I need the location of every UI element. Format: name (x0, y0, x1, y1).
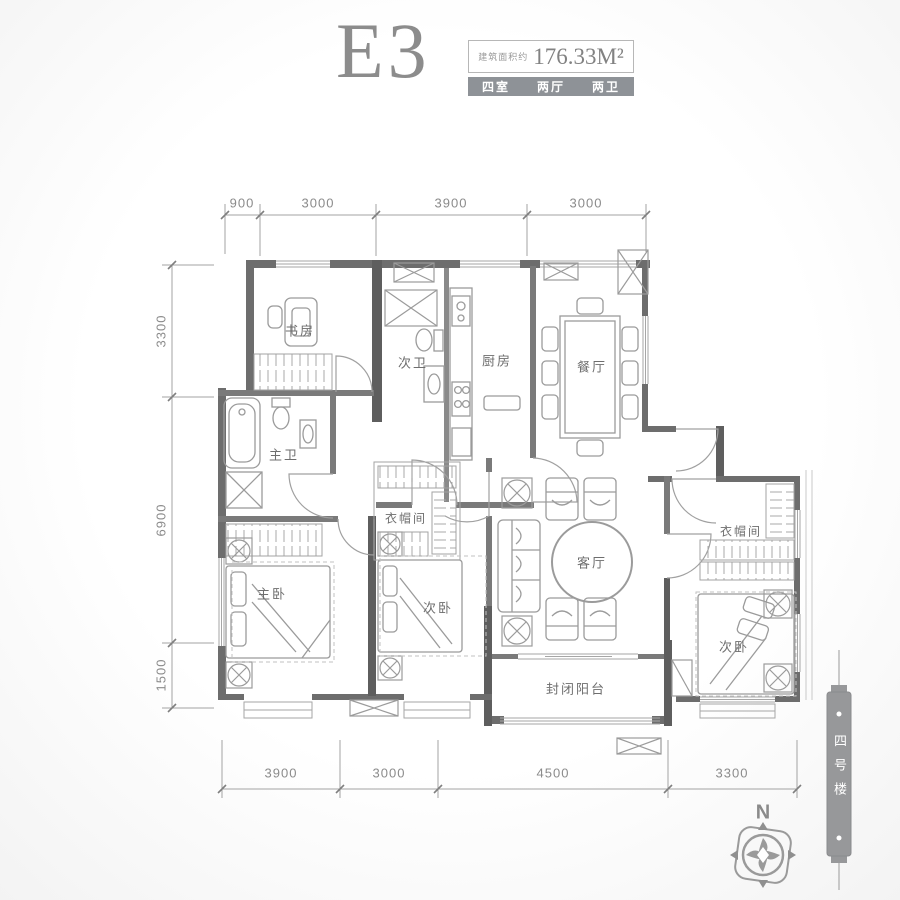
fan-coil-icon (502, 616, 532, 646)
room-label-study: 书房 (285, 321, 315, 340)
dim-left-3300: 3300 (154, 315, 169, 348)
toilet-icon (272, 398, 290, 429)
dining-table-icon (542, 298, 638, 456)
unit-name: E3 (336, 12, 431, 90)
room-label-bed3: 次卧 (719, 637, 749, 656)
badge-baths: 两卫 (592, 78, 620, 95)
dim-bottom-3900: 3900 (265, 766, 298, 781)
dim-bottom-3300: 3300 (716, 766, 749, 781)
nightstand-icon (764, 664, 792, 692)
badge-halls: 两厅 (537, 78, 565, 95)
window-ac-icon (350, 700, 398, 716)
sofa-icon (498, 520, 540, 612)
window-ac-icon (617, 738, 661, 754)
room-label-closet1: 衣帽间 (385, 510, 427, 527)
toilet-icon (416, 329, 443, 351)
kitchen-counter-icon (450, 288, 520, 460)
room-label-bed2: 次卧 (423, 598, 453, 617)
dim-top-3000a: 3000 (302, 196, 335, 211)
dim-left-6900: 6900 (154, 504, 169, 537)
sink-icon (300, 420, 316, 448)
room-label-closet2: 衣帽间 (720, 523, 762, 540)
room-label-bath2: 次卫 (398, 353, 428, 372)
area-box: 建筑面积约 176.33M² (468, 40, 634, 73)
door-arcs (289, 356, 718, 578)
shower-icon (226, 472, 262, 508)
dim-bottom-4500: 4500 (537, 766, 570, 781)
room-label-bath1: 主卫 (269, 445, 299, 464)
room-label-living: 客厅 (577, 553, 607, 572)
floorplan-page: E3 建筑面积约 176.33M² 四室 两厅 两卫 900 3000 3900… (0, 0, 900, 900)
dim-bottom-3000: 3000 (373, 766, 406, 781)
bathtub-icon (224, 398, 260, 468)
area-value: 176.33M² (533, 44, 624, 70)
armchair-icon (584, 478, 616, 520)
window-ac-icon (544, 263, 578, 280)
armchair-icon (584, 598, 616, 640)
armchair-icon (546, 598, 578, 640)
layout-badge-bar: 四室 两厅 两卫 (468, 77, 634, 96)
nightstand-icon (378, 656, 402, 680)
bed-icon (226, 562, 334, 662)
room-label-dining: 餐厅 (577, 357, 607, 376)
area-label: 建筑面积约 (478, 50, 528, 63)
compass-north-label: N (756, 802, 770, 825)
dim-left-1500: 1500 (154, 659, 169, 692)
wardrobe-hatch (226, 354, 794, 580)
equipment-platform-icon (672, 660, 692, 696)
dim-top-3900: 3900 (435, 196, 468, 211)
compass-icon (730, 822, 796, 888)
shaft-icon (385, 290, 437, 326)
floorplan-canvas (0, 0, 900, 900)
building-marker-label: 四号楼 (831, 734, 848, 806)
dim-top-900: 900 (230, 196, 255, 211)
room-label-kitchen: 厨房 (482, 351, 512, 370)
room-label-master: 主卧 (257, 584, 287, 603)
room-label-balcony: 封闭阳台 (546, 679, 606, 698)
badge-rooms: 四室 (482, 78, 510, 95)
dimension-lines (162, 204, 801, 798)
dim-top-3000b: 3000 (570, 196, 603, 211)
nightstand-icon (226, 662, 252, 688)
